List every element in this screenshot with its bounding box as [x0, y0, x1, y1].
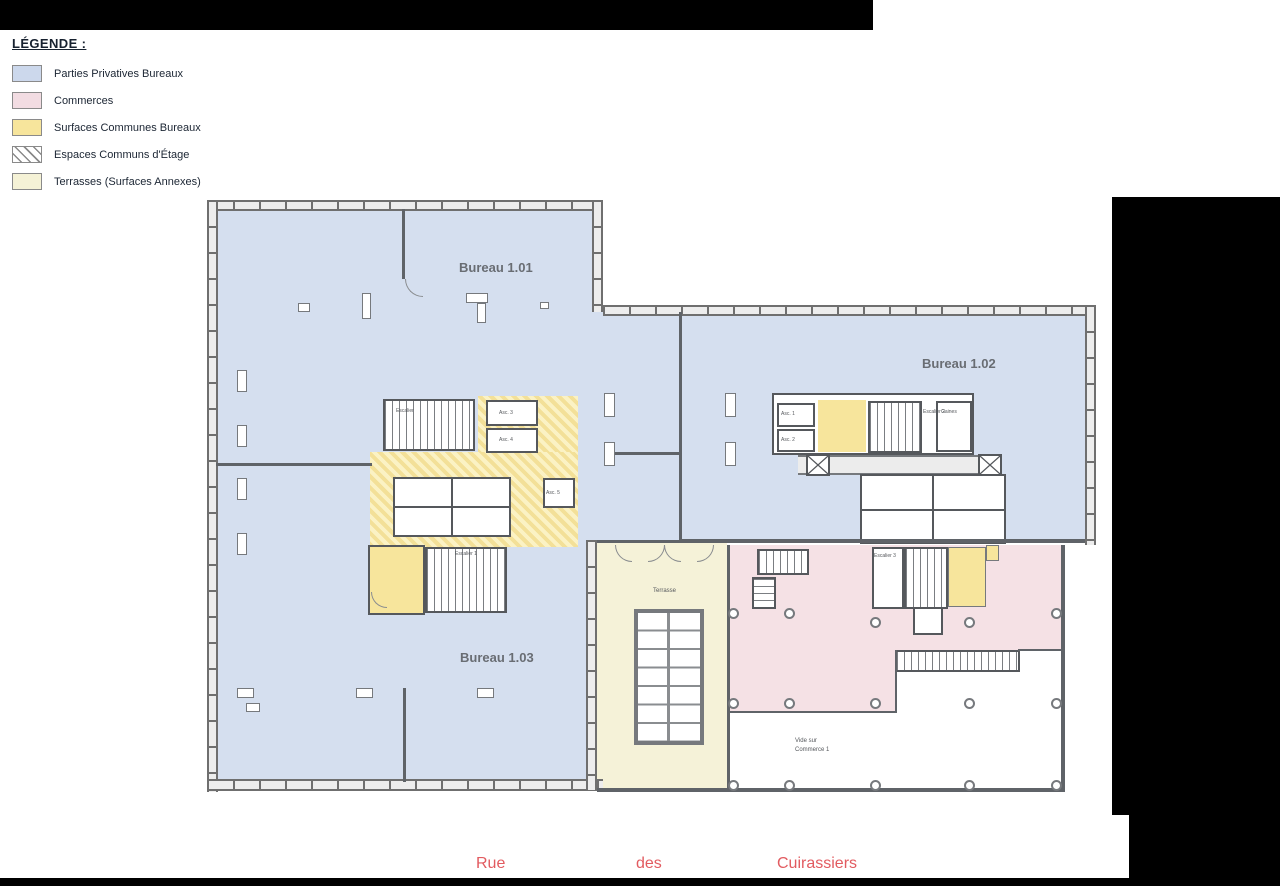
legend: LÉGENDE : Parties Privatives Bureaux Com…: [12, 36, 201, 200]
street-name-des: des: [636, 855, 662, 873]
column: [964, 780, 975, 791]
column: [1051, 780, 1062, 791]
redaction-bar-right-upper: [1112, 197, 1280, 815]
legend-label: Terrasses (Surfaces Annexes): [54, 176, 201, 188]
street-name-rue: Rue: [476, 855, 505, 873]
fixture: [237, 425, 247, 447]
stair-escalier-3: [904, 547, 948, 609]
lobby-commerce-core-small: [986, 545, 999, 561]
label-asc4: Asc. 4: [499, 437, 513, 443]
label-gaines: Gaines: [941, 409, 957, 415]
legend-item-commerces: Commerces: [12, 92, 201, 109]
lobby-core-right: [818, 400, 866, 452]
label-escalier-3: Escalier 3: [874, 553, 896, 559]
legend-swatch-surfaces-communes: [12, 119, 42, 136]
redaction-bar-bottom: [0, 878, 1280, 886]
fixture: [477, 303, 486, 323]
label-asc3: Asc. 3: [499, 410, 513, 416]
label-vide-sur: Vide sur: [795, 737, 817, 745]
facade-west: [207, 200, 218, 792]
fixture: [356, 688, 373, 698]
wall: [862, 509, 1004, 511]
legend-label: Surfaces Communes Bureaux: [54, 122, 201, 134]
wall-commerce-west: [727, 545, 730, 790]
legend-item-surfaces-communes: Surfaces Communes Bureaux: [12, 119, 201, 136]
legend-swatch-parties-privatives: [12, 65, 42, 82]
label-asc1: Asc. 1: [781, 411, 795, 417]
label-bureau-101: Bureau 1.01: [459, 260, 533, 275]
fixture: [477, 688, 494, 698]
fixture: [237, 533, 247, 555]
stairwell-core-left: [383, 399, 475, 451]
column: [1051, 698, 1062, 709]
wall: [395, 506, 509, 508]
fixture: [725, 442, 736, 466]
legend-swatch-commerces: [12, 92, 42, 109]
fixture: [246, 703, 260, 712]
fixture: [298, 303, 310, 312]
wall-corridor-east: [679, 312, 682, 542]
floor-plan-page: Bureau 1.01 Bureau 1.02 Bureau 1.03 Terr…: [0, 0, 1280, 886]
terrasse-skylight-grid: [634, 609, 704, 745]
fixture: [604, 393, 615, 417]
column: [784, 698, 795, 709]
legend-item-parties-privatives: Parties Privatives Bureaux: [12, 65, 201, 82]
wall-stub-corridor: [612, 452, 681, 455]
fixture: [540, 302, 549, 309]
wall-south-terrasse-commerce: [597, 788, 1065, 792]
service-lift-box: [913, 607, 943, 635]
legend-label: Parties Privatives Bureaux: [54, 68, 183, 80]
fixture: [237, 370, 247, 392]
column: [784, 608, 795, 619]
column: [870, 780, 881, 791]
fixture: [237, 478, 247, 500]
joint-x-brace-left: [806, 454, 830, 476]
label-commerce-1: Commerce 1: [795, 746, 829, 754]
fixture: [604, 442, 615, 466]
stair-escalier-2: [868, 401, 922, 453]
column: [728, 698, 739, 709]
facade-east-left-wing-lower: [586, 540, 597, 790]
wc-core-left: [393, 477, 511, 537]
fixture: [362, 293, 371, 319]
column: [870, 698, 881, 709]
label-bureau-103: Bureau 1.03: [460, 650, 534, 665]
legend-label: Espaces Communs d'Étage: [54, 149, 189, 161]
label-asc2: Asc. 2: [781, 437, 795, 443]
wc-core-right: [860, 474, 1006, 544]
facade-north-left-wing: [207, 200, 603, 211]
legend-swatch-espaces-communs: [12, 146, 42, 163]
column: [964, 617, 975, 628]
label-asc5: Asc. 5: [546, 490, 560, 496]
redaction-bar-right-lower: [1129, 814, 1280, 886]
column: [728, 780, 739, 791]
legend-item-terrasses: Terrasses (Surfaces Annexes): [12, 173, 201, 190]
wall-commerce-step: [895, 650, 897, 713]
label-escalier-core-left: Escalier: [396, 408, 414, 414]
stair-commerce-small-1: [757, 549, 809, 575]
wall-commerce-east: [1061, 545, 1065, 792]
stair-commerce-small-2: [752, 577, 776, 609]
wall-partition-101: [402, 209, 405, 279]
label-escalier-1: Escalier 1: [455, 551, 477, 557]
legend-swatch-terrasses: [12, 173, 42, 190]
wall-commerce-lower-south: [727, 711, 897, 713]
wall-partition-103: [403, 688, 406, 782]
legend-item-espaces-communs: Espaces Communs d'Étage: [12, 146, 201, 163]
column: [784, 780, 795, 791]
fixture: [466, 293, 488, 303]
wall-void-north: [1018, 649, 1063, 651]
wall-partition-101-103: [216, 463, 372, 466]
street-name-cuirassiers: Cuirassiers: [777, 855, 857, 873]
fixture: [237, 688, 254, 698]
fixture: [725, 393, 736, 417]
column: [728, 608, 739, 619]
legend-label: Commerces: [54, 95, 113, 107]
joint-x-brace-right: [978, 454, 1002, 476]
stair-band-commerce: [895, 650, 1020, 672]
column: [964, 698, 975, 709]
wall-south-bureau-102: [682, 539, 1085, 543]
label-terrasse: Terrasse: [653, 587, 676, 595]
facade-east-left-wing-upper: [592, 200, 603, 312]
column: [870, 617, 881, 628]
facade-north-right-wing: [603, 305, 1095, 316]
legend-title: LÉGENDE :: [12, 36, 201, 51]
facade-east-right-wing: [1085, 305, 1096, 545]
redaction-bar-top: [0, 0, 873, 30]
label-bureau-102: Bureau 1.02: [922, 356, 996, 371]
wall-terrasse-north: [597, 540, 727, 543]
column: [1051, 608, 1062, 619]
lobby-commerce-core: [948, 547, 986, 607]
